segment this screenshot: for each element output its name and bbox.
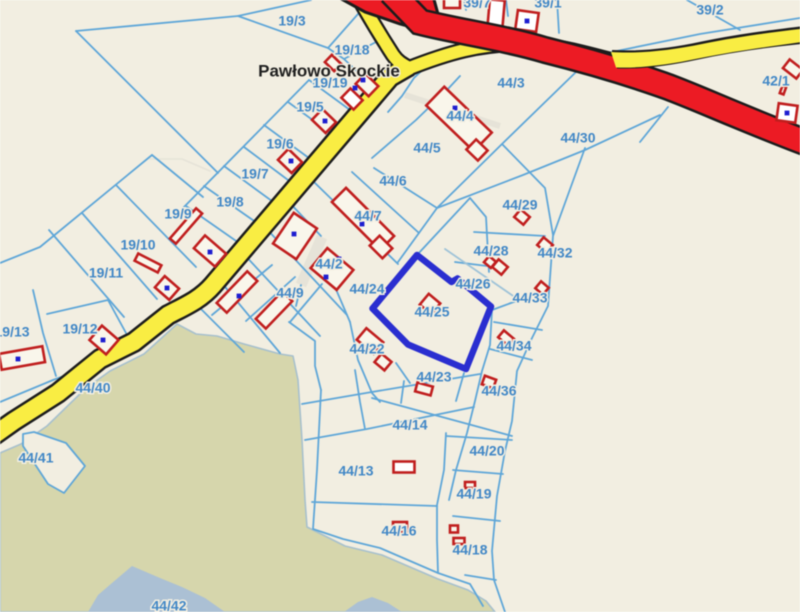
svg-text:19/18: 19/18: [334, 42, 369, 58]
svg-text:19/13: 19/13: [0, 324, 30, 340]
svg-text:44/28: 44/28: [473, 243, 508, 259]
svg-text:44/7: 44/7: [354, 208, 381, 224]
svg-text:19/9: 19/9: [164, 206, 191, 222]
svg-text:Pawłowo Skockie: Pawłowo Skockie: [258, 61, 400, 80]
svg-text:44/40: 44/40: [75, 380, 110, 396]
svg-text:44/5: 44/5: [413, 140, 440, 156]
svg-text:44/32: 44/32: [537, 245, 572, 261]
svg-text:44/25: 44/25: [414, 304, 449, 320]
svg-text:44/18: 44/18: [452, 542, 487, 558]
svg-text:44/3: 44/3: [497, 75, 524, 91]
svg-text:44/19: 44/19: [456, 486, 491, 502]
svg-text:44/6: 44/6: [379, 173, 406, 189]
svg-text:19/10: 19/10: [120, 237, 155, 253]
svg-text:19/5: 19/5: [296, 99, 323, 115]
svg-text:44/36: 44/36: [481, 383, 516, 399]
svg-text:44/29: 44/29: [502, 197, 537, 213]
svg-text:44/2: 44/2: [315, 256, 342, 272]
svg-text:44/34: 44/34: [496, 338, 531, 354]
svg-text:19/7: 19/7: [241, 166, 268, 182]
svg-text:19/11: 19/11: [89, 265, 123, 281]
svg-text:44/13: 44/13: [338, 463, 373, 479]
svg-text:39/7: 39/7: [463, 0, 490, 11]
svg-text:44/30: 44/30: [560, 130, 595, 146]
svg-text:42/1: 42/1: [762, 73, 789, 89]
svg-text:19/12: 19/12: [62, 321, 97, 337]
svg-text:44/22: 44/22: [349, 341, 384, 357]
svg-text:44/23: 44/23: [416, 369, 451, 385]
svg-text:44/14: 44/14: [392, 417, 427, 433]
svg-text:44/26: 44/26: [455, 276, 490, 292]
svg-text:44/33: 44/33: [512, 290, 547, 306]
svg-text:19/6: 19/6: [266, 136, 293, 152]
svg-text:44/9: 44/9: [276, 285, 303, 301]
svg-text:44/42: 44/42: [151, 598, 186, 612]
svg-text:19/8: 19/8: [216, 194, 243, 210]
svg-text:39/2: 39/2: [696, 2, 723, 18]
svg-text:19/3: 19/3: [278, 13, 305, 29]
svg-text:44/24: 44/24: [349, 281, 384, 297]
svg-text:44/41: 44/41: [18, 450, 53, 466]
svg-text:44/4: 44/4: [446, 108, 473, 124]
svg-text:44/20: 44/20: [469, 443, 504, 459]
svg-text:44/16: 44/16: [381, 523, 416, 539]
svg-text:39/1: 39/1: [534, 0, 561, 11]
